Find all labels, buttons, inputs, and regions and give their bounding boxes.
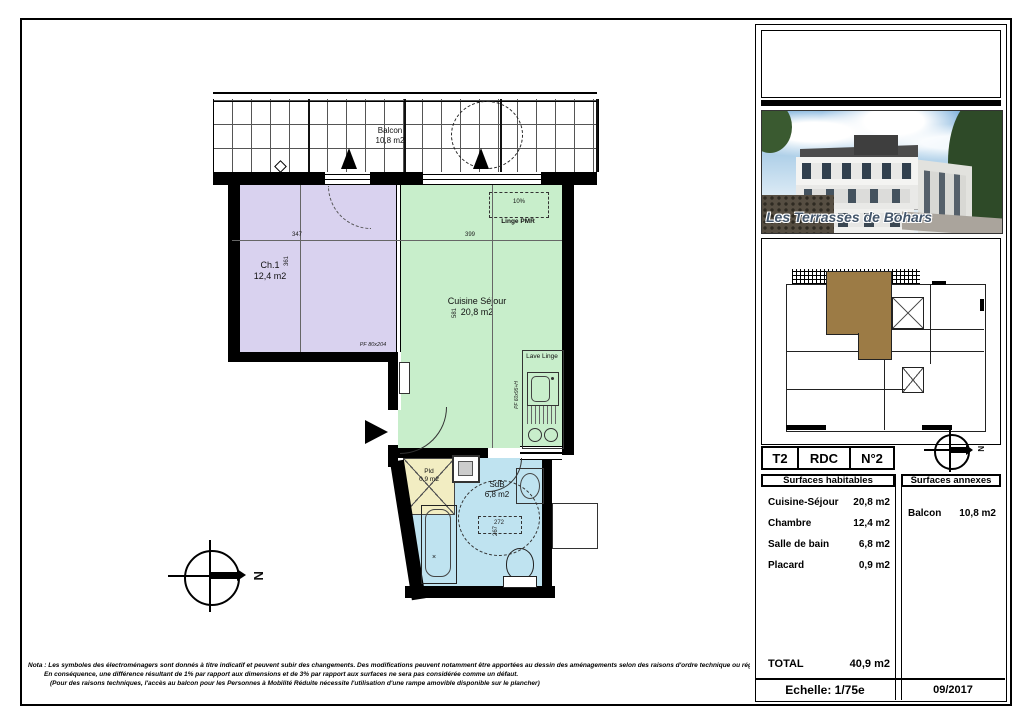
room-area: 6,8 m2: [485, 490, 509, 499]
surface-label: Salle de bain: [768, 539, 829, 550]
key-plan-wall-4: [786, 389, 906, 390]
room-area: 0,9 m2: [419, 476, 439, 483]
pmr-zone-box: 10%: [489, 192, 549, 218]
compass-sidebar: N: [922, 428, 992, 472]
room-label-sejour: Cuisine Séjour 20,8 m2: [432, 296, 522, 318]
room-label-balcon: Balcon 10,8 m2: [355, 126, 425, 145]
lave-linge-label: Lave Linge: [524, 353, 560, 361]
surface-value: 12,4 m2: [853, 518, 890, 529]
column-divider-2: [901, 487, 902, 700]
compass-arrow-tip: [966, 445, 973, 455]
surface-label: Chambre: [768, 518, 811, 529]
surface-row: Chambre 12,4 m2: [768, 518, 890, 529]
room-name: Balcon: [378, 126, 402, 135]
scale-cell: Echelle: 1/75e: [755, 679, 895, 700]
compass-hline: [168, 575, 210, 577]
key-plan-tick-2: [980, 299, 984, 311]
surface-label: Placard: [768, 560, 804, 571]
total-row: TOTAL 40,9 m2: [768, 658, 890, 670]
annexes-header: Surfaces annexes: [901, 474, 1001, 487]
kitchen-sink: [527, 372, 559, 406]
room-area: 12,4 m2: [254, 271, 287, 281]
door-swing-arrow-right: [473, 148, 489, 169]
balcony-railing: [213, 92, 597, 102]
dim-line-vertical-sejour: [492, 185, 493, 448]
wall-top-2: [370, 172, 423, 185]
habitables-header: Surfaces habitables: [761, 474, 895, 487]
dim-ch1-height: 361: [284, 246, 290, 276]
dim-ch1-width: 347: [282, 232, 312, 238]
column-divider-1: [895, 474, 896, 700]
wall-left-entry-upper: [388, 352, 398, 410]
key-plan-elevator: [902, 367, 924, 393]
key-plan-unit-highlight: [826, 271, 892, 335]
wall-bottom-chambre: [228, 352, 398, 362]
surface-row: Cuisine-Séjour 20,8 m2: [768, 497, 890, 508]
compass-north-label: N: [975, 443, 985, 455]
total-label: TOTAL: [768, 658, 804, 670]
dim-sejour-height: 581: [452, 298, 458, 328]
annex-label: Balcon: [908, 508, 941, 519]
room-label-placard: Pld 0,9 m2: [405, 468, 453, 484]
note-line-3: (Pour des raisons techniques, l'accès au…: [50, 680, 750, 687]
room-area: 20,8 m2: [461, 307, 494, 317]
key-plan-wall-2: [930, 284, 931, 364]
room-name: SdB: [489, 480, 504, 489]
title-block: [761, 30, 1001, 98]
entrance-arrow-icon: [365, 420, 388, 444]
surface-value: 20,8 m2: [853, 497, 890, 508]
duct-inner: [458, 461, 473, 476]
building-attic: [854, 135, 898, 155]
key-plan-tick-1: [932, 281, 946, 285]
dim-line-vertical-chambre: [300, 185, 301, 352]
bathtub: ×: [421, 505, 457, 584]
project-photo: Les Terrasses de Bohars: [761, 110, 1003, 234]
dim-sdb-width: 272: [480, 520, 518, 526]
surface-row: Placard 0,9 m2: [768, 560, 890, 571]
kitchen-burner-1: [528, 428, 542, 442]
window-size-label: PF 60x95+H: [514, 372, 520, 418]
date-cell: 09/2017: [901, 679, 1005, 700]
slope-label: 10%: [490, 199, 548, 206]
kitchen-burner-2: [544, 428, 558, 442]
building-upper-windows: [802, 163, 912, 179]
kitchen-drainer: [527, 406, 557, 424]
surface-label: Cuisine-Séjour: [768, 497, 839, 508]
annex-row: Balcon 10,8 m2: [908, 508, 996, 519]
bathtub-drain: ×: [432, 554, 436, 562]
partition-chambre-sejour: [396, 185, 401, 352]
surface-row: Salle de bain 6,8 m2: [768, 539, 890, 550]
compass-arrow-bar: [950, 447, 966, 453]
kitchen-sink-basin: [531, 376, 550, 402]
room-name: Pld: [424, 468, 433, 475]
dim-sejour-width: 399: [455, 232, 485, 238]
key-plan-wall-5: [884, 329, 984, 330]
photo-caption: Les Terrasses de Bohars: [766, 209, 998, 225]
dim-sdb-height: 267: [493, 517, 499, 545]
annex-value: 10,8 m2: [959, 508, 996, 519]
toilet-tank: [503, 576, 537, 588]
dim-line-horizontal: [232, 240, 562, 241]
compass-main: N: [168, 540, 278, 612]
unit-floor-cell: RDC: [799, 448, 851, 468]
surface-value: 6,8 m2: [859, 539, 890, 550]
unit-number-cell: N°2: [851, 448, 893, 468]
key-plan-tick-3: [786, 425, 826, 430]
total-value: 40,9 m2: [850, 658, 890, 670]
linge-pmr-label: Linge PMR: [497, 218, 539, 226]
room-area: 10,8 m2: [376, 136, 405, 145]
exterior-recess: [552, 503, 598, 549]
unit-table: T2 RDC N°2: [761, 446, 895, 470]
compass-arrow-tip: [237, 569, 246, 581]
key-plan-stair: [892, 297, 924, 329]
room-name: Ch.1: [260, 260, 279, 270]
window-sejour-balcony: [423, 174, 541, 185]
room-label-chambre: Ch.1 12,4 m2: [235, 260, 305, 282]
compass-hline: [924, 449, 950, 451]
note-line-1: Nota : Les symboles des électroménagers …: [28, 662, 750, 669]
window-chambre-balcony: [325, 174, 370, 185]
title-block-divider: [761, 100, 1001, 106]
kitchen-faucet-icon: [551, 377, 554, 380]
key-plan-box: [761, 238, 1001, 445]
room-label-sdb: SdB 6,8 m2: [467, 480, 527, 499]
bathtub-inner: [425, 509, 451, 577]
radiator: [399, 362, 410, 394]
note-line-2: En conséquence, une différence résultant…: [44, 671, 750, 678]
compass-north-label: N: [250, 568, 266, 584]
unit-type-cell: T2: [763, 448, 799, 468]
compass-arrow-bar: [210, 572, 237, 579]
door-size-label: PF 80x204: [350, 342, 396, 348]
surface-value: 0,9 m2: [859, 560, 890, 571]
door-swing-arrow-left: [341, 148, 357, 169]
key-plan-unit-highlight-ext: [858, 333, 892, 360]
